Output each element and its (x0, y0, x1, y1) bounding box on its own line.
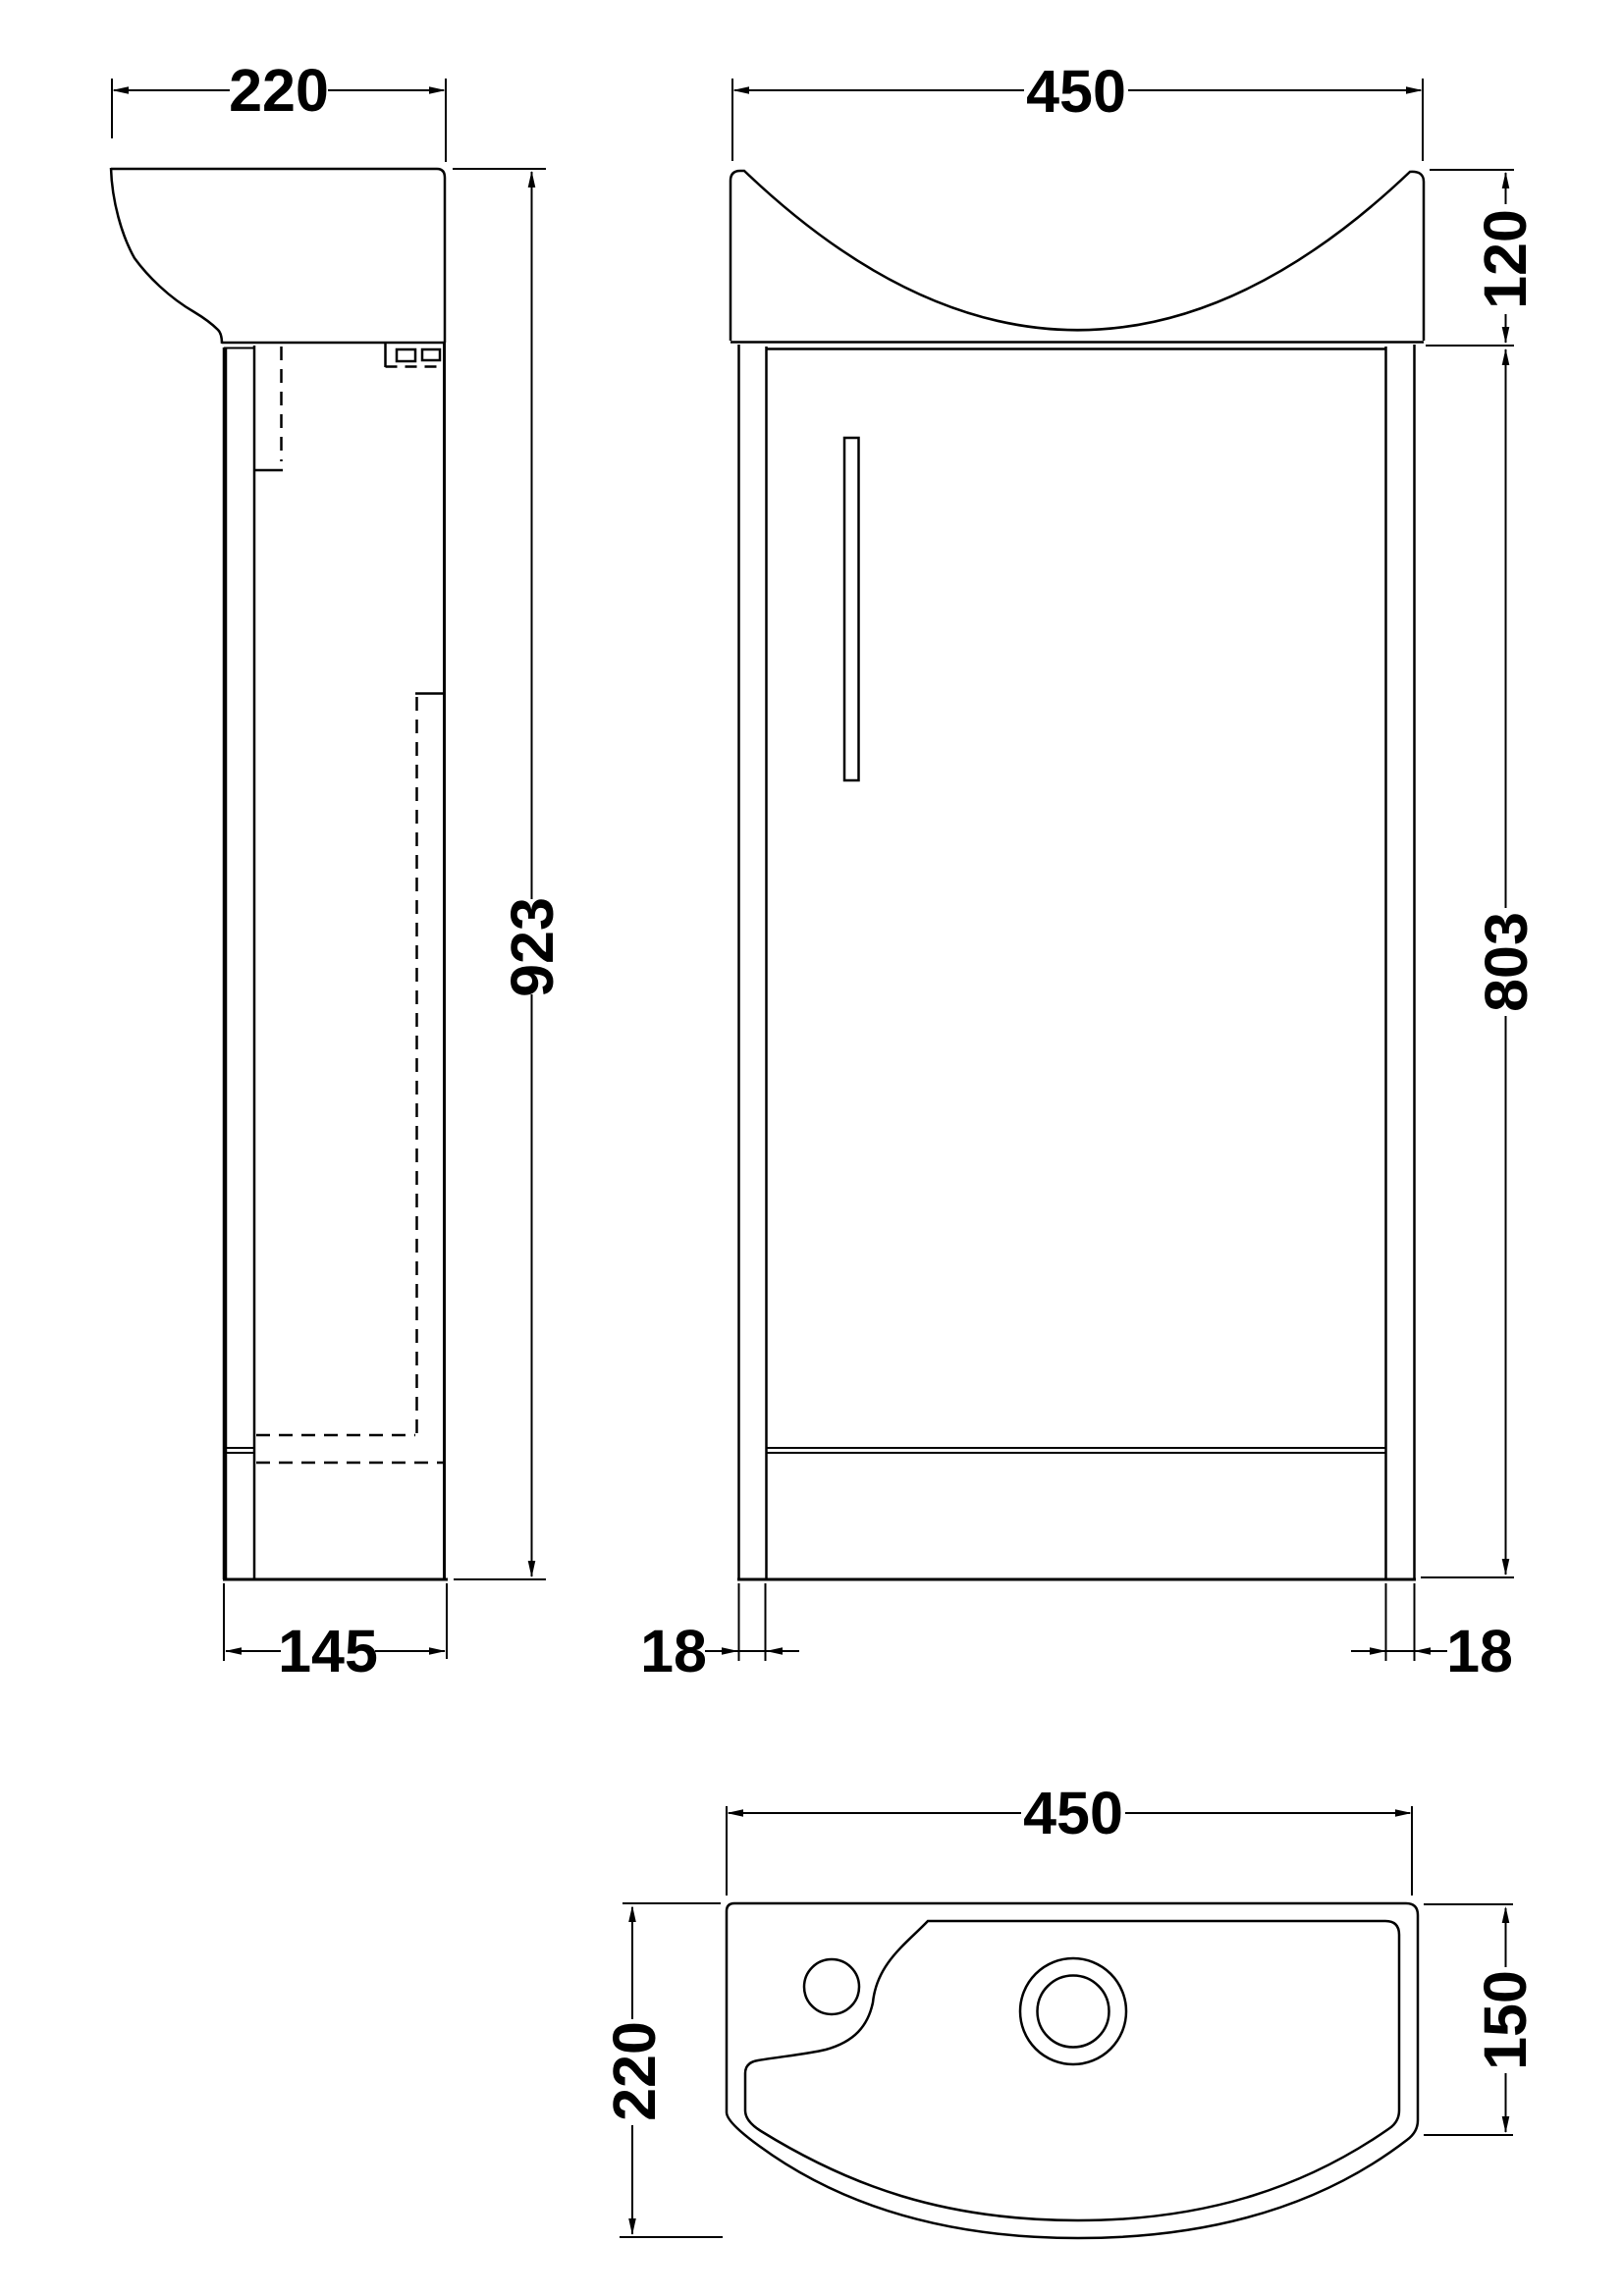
svg-text:450: 450 (1026, 58, 1126, 125)
svg-text:803: 803 (1473, 912, 1540, 1012)
svg-text:220: 220 (229, 57, 329, 124)
svg-text:18: 18 (640, 1618, 707, 1684)
svg-text:145: 145 (278, 1618, 378, 1684)
svg-text:220: 220 (601, 2021, 668, 2121)
svg-text:18: 18 (1446, 1618, 1513, 1684)
svg-text:450: 450 (1023, 1780, 1123, 1846)
svg-text:150: 150 (1472, 1970, 1539, 2070)
svg-text:120: 120 (1472, 209, 1539, 309)
svg-text:923: 923 (499, 897, 566, 997)
